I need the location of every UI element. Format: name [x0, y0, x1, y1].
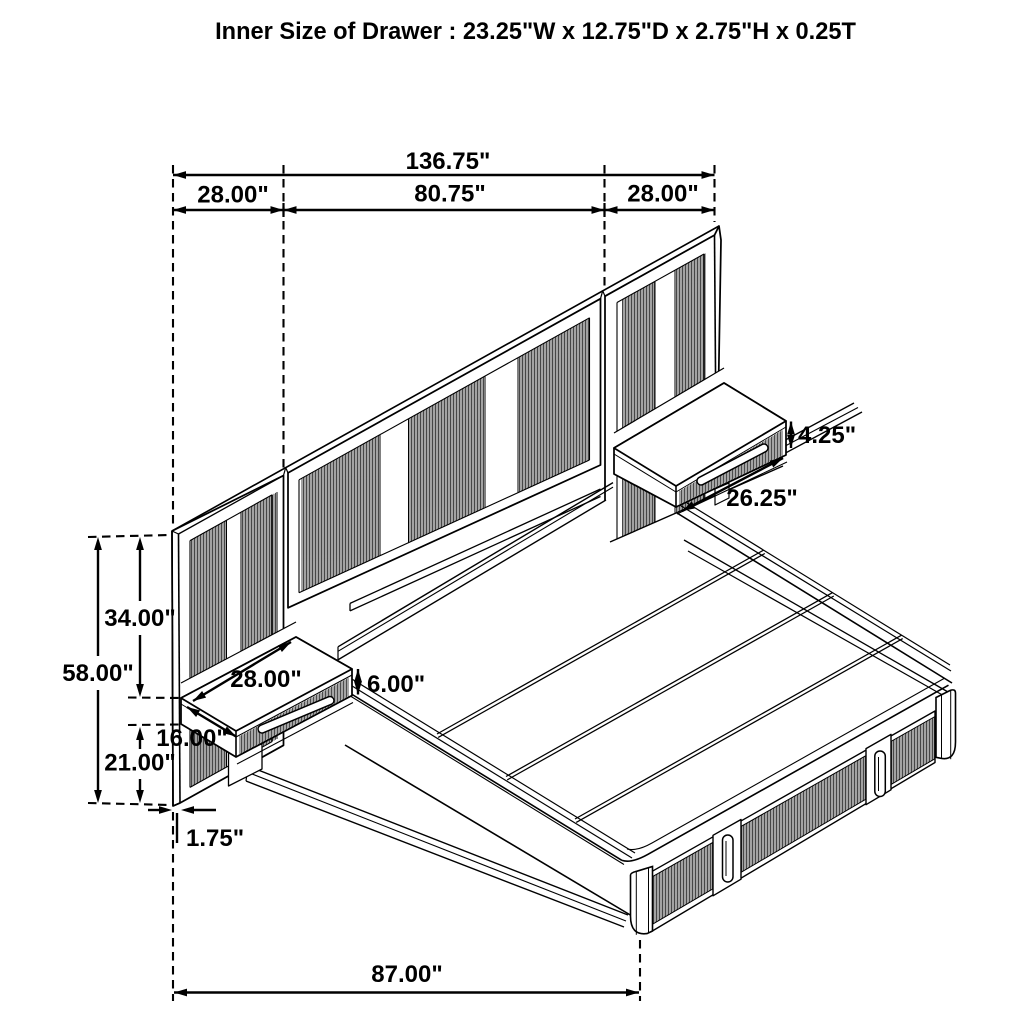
svg-text:34.00": 34.00" — [104, 605, 175, 632]
svg-text:1.75": 1.75" — [186, 825, 244, 852]
svg-text:28.00": 28.00" — [230, 666, 301, 693]
svg-text:21.00": 21.00" — [104, 750, 175, 777]
svg-text:28.00": 28.00" — [197, 182, 268, 209]
svg-text:28.00": 28.00" — [627, 181, 698, 208]
svg-text:6.00": 6.00" — [367, 671, 425, 698]
svg-text:Inner Size of Drawer : 23.25"W: Inner Size of Drawer : 23.25"W x 12.75"D… — [215, 19, 856, 45]
svg-text:136.75": 136.75" — [406, 148, 491, 175]
svg-text:58.00": 58.00" — [62, 660, 133, 687]
svg-text:16.00": 16.00" — [156, 725, 227, 752]
svg-text:80.75": 80.75" — [414, 181, 485, 208]
svg-text:4.25": 4.25" — [798, 422, 856, 449]
svg-text:87.00": 87.00" — [371, 961, 442, 988]
svg-text:26.25": 26.25" — [726, 485, 797, 512]
